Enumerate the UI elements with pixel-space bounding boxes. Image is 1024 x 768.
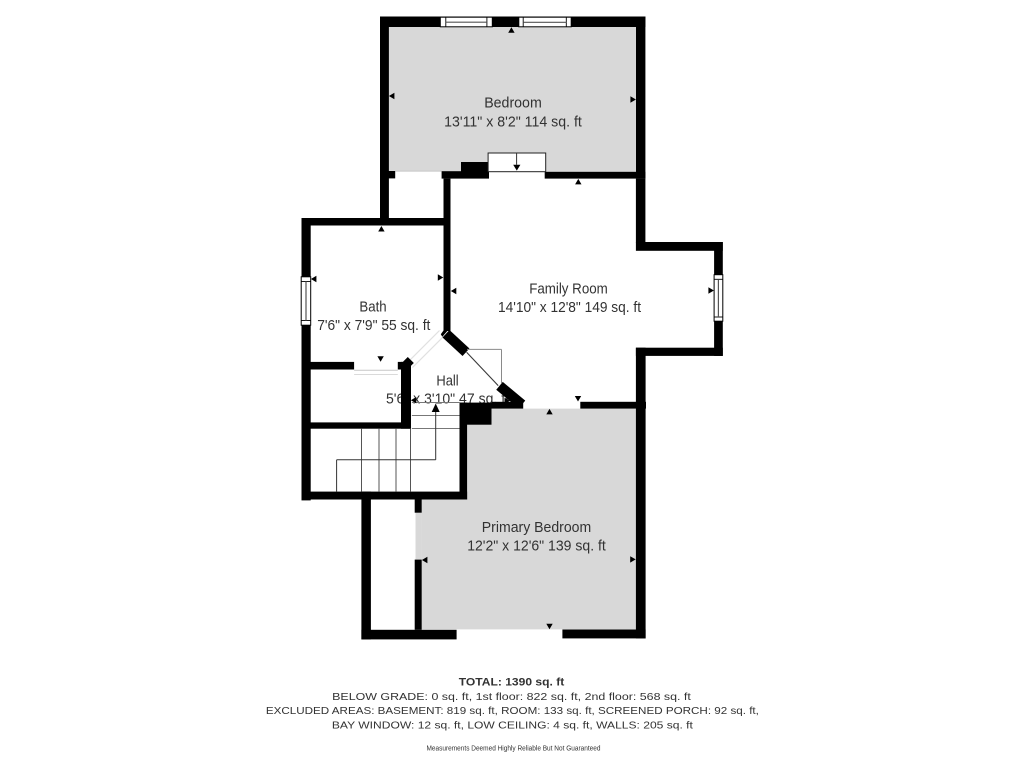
svg-text:BAY WINDOW: 12 sq. ft, LOW CEI: BAY WINDOW: 12 sq. ft, LOW CEILING: 4 sq… xyxy=(332,719,693,731)
svg-text:13'11" x 8'2" 114 sq. ft: 13'11" x 8'2" 114 sq. ft xyxy=(444,113,582,130)
svg-text:Primary Bedroom: Primary Bedroom xyxy=(482,519,591,536)
svg-text:Bath: Bath xyxy=(359,299,386,316)
svg-text:7'6" x 7'9" 55 sq. ft: 7'6" x 7'9" 55 sq. ft xyxy=(317,317,431,334)
svg-text:BELOW GRADE: 0 sq. ft, 1st flo: BELOW GRADE: 0 sq. ft, 1st floor: 822 sq… xyxy=(332,691,691,703)
svg-text:12'2" x 12'6" 139 sq. ft: 12'2" x 12'6" 139 sq. ft xyxy=(467,538,606,555)
svg-text:Measurements Deemed Highly Rel: Measurements Deemed Highly Reliable But … xyxy=(427,745,601,752)
svg-text:Hall: Hall xyxy=(436,373,458,390)
svg-text:Family Room: Family Room xyxy=(529,281,608,298)
svg-text:Bedroom: Bedroom xyxy=(484,95,542,112)
svg-text:TOTAL: 1390 sq. ft: TOTAL: 1390 sq. ft xyxy=(459,677,565,689)
svg-text:EXCLUDED AREAS: BASEMENT: 819: EXCLUDED AREAS: BASEMENT: 819 sq. ft, RO… xyxy=(266,705,759,717)
svg-text:14'10" x 12'8" 149 sq. ft: 14'10" x 12'8" 149 sq. ft xyxy=(498,299,642,316)
